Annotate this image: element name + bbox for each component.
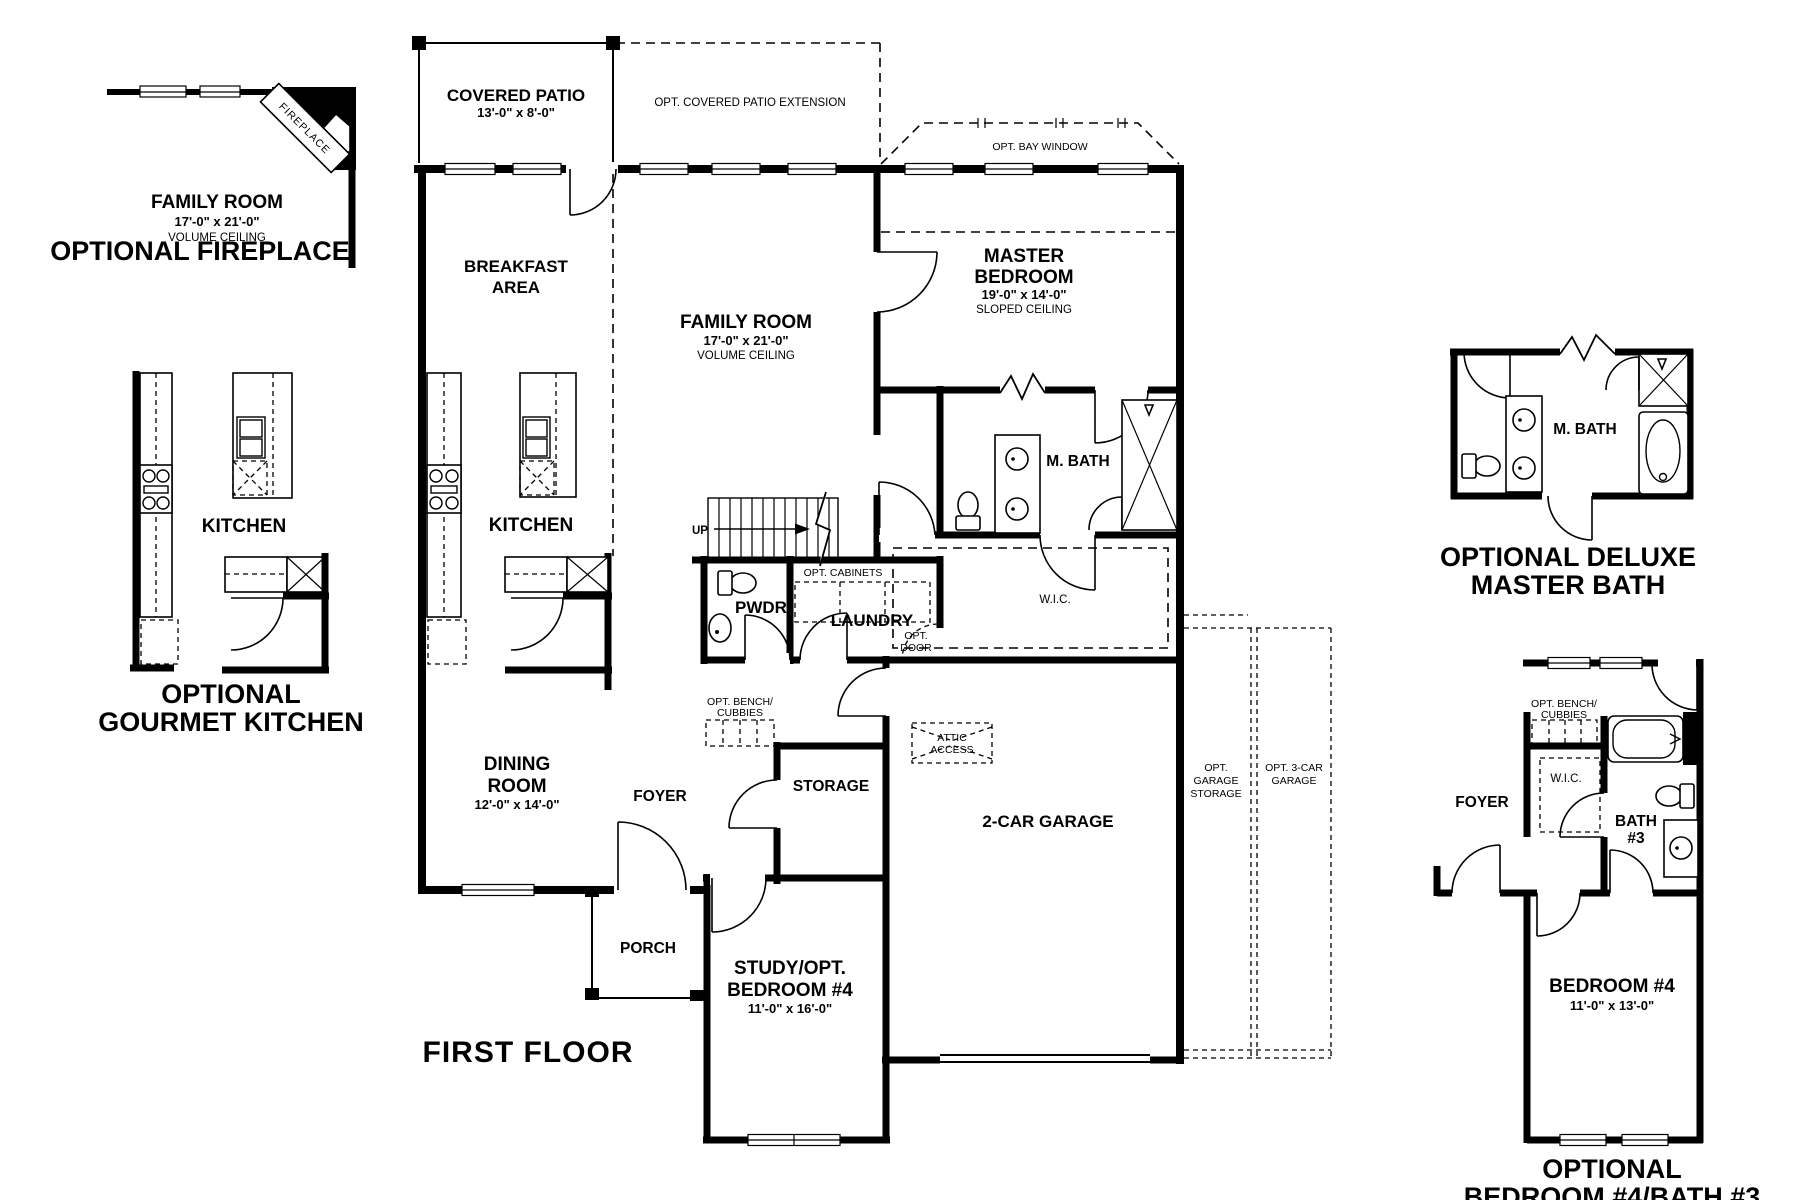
opt-garage-storage-3: STORAGE — [1190, 788, 1241, 800]
mbath-label: M. BATH — [1046, 453, 1109, 470]
bed4-caption-1: OPTIONAL — [1542, 1154, 1682, 1184]
bath-hall-door — [879, 482, 935, 535]
wic-label: W.I.C. — [1039, 594, 1070, 606]
opt-garage-storage-1: OPT. — [1204, 762, 1227, 774]
toilet-fixture — [956, 492, 980, 530]
opt-patio-extension-label: OPT. COVERED PATIO EXTENSION — [654, 97, 845, 109]
dining-label-1: DINING — [484, 754, 551, 775]
covered-patio-dims: 13'-0" x 8'-0" — [477, 105, 555, 120]
cooktop-fixture — [427, 465, 461, 513]
bedroom4-label: BEDROOM #4 — [1549, 976, 1675, 997]
master-bedroom-door — [877, 252, 937, 312]
bench-cubbies — [1532, 720, 1597, 745]
pantry-door — [511, 598, 563, 650]
deluxe-caption-2: MASTER BATH — [1471, 570, 1665, 600]
master-bedroom-note: SLOPED CEILING — [976, 304, 1072, 316]
gourmet-kitchen-label: KITCHEN — [202, 516, 286, 537]
family-room-dims: 17'-0" x 21'-0" — [703, 333, 788, 348]
tub — [1608, 716, 1683, 762]
master-bedroom-label-1: MASTER — [984, 246, 1065, 267]
storage-label: STORAGE — [793, 778, 869, 795]
garage-label: 2-CAR GARAGE — [982, 812, 1113, 831]
kitchen-label: KITCHEN — [489, 515, 573, 536]
sink-fixture — [1513, 409, 1535, 431]
floor-plan-drawing: FIREPLACE FAMILY ROOM 17'-0" x 21'-0" VO… — [0, 0, 1800, 1200]
master-bedroom-label-2: BEDROOM — [974, 267, 1073, 288]
bench-cubbies — [706, 720, 774, 746]
deluxe-mbath-label: M. BATH — [1553, 421, 1616, 438]
bedroom4-door — [1537, 893, 1580, 936]
bath3-door — [1610, 850, 1653, 893]
first-floor-title: FIRST FLOOR — [423, 1036, 634, 1069]
main-plan: COVERED PATIO 13'-0" x 8'-0" OPT. COVERE… — [412, 36, 1331, 1146]
toilet-fixture — [1462, 454, 1500, 478]
opt-door-label-2: DOOR — [900, 642, 932, 654]
bench-label-2: CUBBIES — [717, 707, 763, 719]
covered-patio-label: COVERED PATIO — [447, 86, 585, 105]
storage-door — [729, 780, 777, 828]
sink-fixture — [709, 614, 731, 642]
kitchen-island — [233, 373, 292, 498]
toilet-fixture — [1656, 784, 1694, 808]
opt-fridge-space — [428, 620, 466, 664]
optional-bedroom4-bath3-inset: OPT. BENCH/ CUBBIES W.I.C. FOYER BATH #3… — [1437, 656, 1760, 1200]
porch-label: PORCH — [620, 940, 676, 957]
wic-door — [1560, 793, 1604, 837]
opt-door-label-1: OPT. — [904, 630, 927, 642]
opt-3car-garage-2: GARAGE — [1272, 775, 1317, 787]
study-door — [712, 878, 766, 932]
attic-access-label-1: ATTIC — [937, 732, 967, 744]
bed4-bench-label-2: CUBBIES — [1541, 709, 1587, 721]
optional-deluxe-master-bath-inset: M. BATH OPTIONAL DELUXE MASTER BATH — [1440, 335, 1696, 600]
shower-door — [1089, 497, 1122, 530]
opt-garage-areas — [1184, 628, 1331, 1058]
sink-fixture — [1513, 457, 1535, 479]
opt-fridge-space — [141, 620, 178, 664]
interior-walls — [505, 165, 1184, 884]
opt-garage-storage-2: GARAGE — [1194, 775, 1239, 787]
bed4-wic-label: W.I.C. — [1550, 773, 1581, 785]
fireplace-corner: FIREPLACE — [260, 83, 356, 172]
shower — [1122, 400, 1177, 530]
opt-bay-window-label: OPT. BAY WINDOW — [992, 141, 1087, 153]
attic-access-label-2: ACCESS — [930, 744, 973, 756]
bath-entry-door — [1464, 352, 1510, 398]
tub — [1639, 412, 1688, 494]
foyer-label: FOYER — [633, 788, 686, 805]
optional-fireplace-caption: OPTIONAL FIREPLACE — [50, 236, 350, 266]
breakfast-label-2: AREA — [492, 278, 540, 297]
toilet-fixture — [718, 571, 756, 595]
garage-entry-door — [838, 668, 886, 716]
deluxe-caption-1: OPTIONAL DELUXE — [1440, 542, 1696, 572]
gourmet-pantry — [222, 553, 329, 672]
sink-fixture — [1006, 448, 1028, 470]
gourmet-caption-line1: OPTIONAL — [161, 679, 301, 709]
laundry-label: LAUNDRY — [831, 611, 914, 630]
master-bedroom-dims: 19'-0" x 14'-0" — [981, 287, 1066, 302]
foyer-door — [1452, 845, 1500, 893]
floor-plan-page: FIREPLACE FAMILY ROOM 17'-0" x 21'-0" VO… — [0, 0, 1800, 1200]
sink-fixture — [1006, 498, 1028, 520]
front-door — [618, 822, 686, 890]
dining-dims: 12'-0" x 14'-0" — [474, 797, 559, 812]
inset-family-room-label: FAMILY ROOM — [151, 192, 283, 213]
study-dims: 11'-0" x 16'-0" — [748, 1001, 832, 1016]
bath3-hall-door — [1652, 663, 1697, 710]
breakfast-label-1: BREAKFAST — [464, 257, 569, 276]
dining-label-2: ROOM — [487, 776, 546, 797]
opt-bay-window: OPT. BAY WINDOW — [881, 118, 1179, 164]
family-room-label: FAMILY ROOM — [680, 312, 812, 333]
family-room-note: VOLUME CEILING — [697, 350, 795, 362]
covered-patio: COVERED PATIO 13'-0" x 8'-0" — [412, 36, 620, 163]
bed4-foyer-label: FOYER — [1455, 794, 1508, 811]
vanity — [1664, 820, 1698, 877]
opt-cabinets-label: OPT. CABINETS — [804, 567, 883, 579]
stairs: UP — [692, 492, 838, 566]
cooktop-fixture — [140, 465, 172, 513]
bedroom-opening-door — [1548, 496, 1592, 540]
opt-patio-extension: OPT. COVERED PATIO EXTENSION — [616, 43, 880, 162]
kitchen-island — [520, 373, 576, 497]
pantry — [505, 557, 608, 592]
stairs-up-label: UP — [692, 525, 708, 537]
bed4-caption-2: BEDROOM #4/BATH #3 — [1464, 1182, 1761, 1200]
bath3-label-2: #3 — [1627, 830, 1645, 847]
shower — [1606, 354, 1688, 406]
optional-gourmet-kitchen-inset: KITCHEN OPTIONAL GOURMET KITCHEN — [98, 371, 364, 737]
study-label-2: BEDROOM #4 — [727, 980, 853, 1001]
study-label-1: STUDY/OPT. — [734, 958, 846, 979]
bath3-label-1: BATH — [1615, 813, 1657, 830]
wic-door — [1040, 535, 1095, 590]
inset-family-room-dims: 17'-0" x 21'-0" — [174, 214, 259, 229]
optional-fireplace-inset: FIREPLACE FAMILY ROOM 17'-0" x 21'-0" VO… — [50, 83, 356, 268]
gourmet-caption-line2: GOURMET KITCHEN — [98, 707, 364, 737]
pwdr-label: PWDR — [735, 598, 787, 617]
bedroom4-dims: 11'-0" x 13'-0" — [1570, 998, 1654, 1013]
opt-3car-garage-1: OPT. 3-CAR — [1265, 762, 1323, 774]
